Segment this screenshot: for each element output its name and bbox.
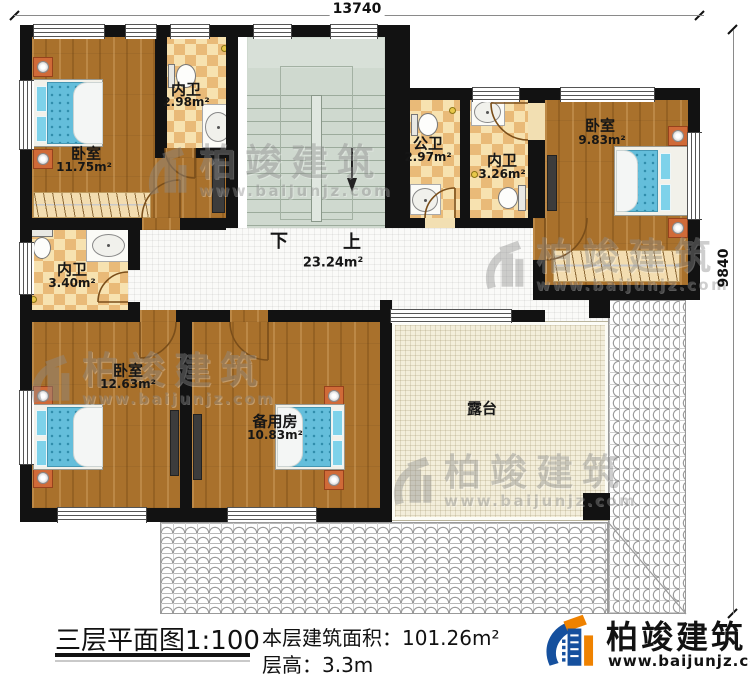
towel-hook — [471, 171, 478, 178]
window — [253, 24, 292, 39]
door-opening — [528, 103, 545, 140]
stair-landing — [248, 38, 384, 68]
cabinet-bedroom-tl — [212, 158, 225, 213]
toilet-bowl — [33, 237, 51, 259]
tv-panel-spare-room — [193, 414, 202, 480]
nightstand — [668, 126, 688, 146]
column-post — [589, 300, 610, 318]
stair-up-label: 上 — [343, 228, 361, 254]
title-underline-shadow — [55, 660, 250, 662]
bed-blanket — [73, 82, 103, 144]
wall — [533, 285, 700, 300]
room-label-terrace: 露台 — [467, 398, 497, 419]
window — [57, 507, 147, 523]
wall — [385, 25, 398, 228]
nightstand — [33, 468, 53, 488]
hallway-area-label: 23.24m² — [303, 256, 363, 271]
wall — [180, 322, 192, 522]
column-post — [583, 493, 610, 520]
floor-area-line: 本层建筑面积：101.26m² — [262, 622, 499, 651]
window — [19, 390, 34, 465]
window — [390, 309, 512, 323]
window — [330, 24, 378, 39]
door-opening — [128, 270, 140, 302]
nightstand — [324, 470, 344, 490]
wall — [398, 218, 545, 228]
bed-blanket — [73, 407, 103, 467]
stair-down-label: 下 — [270, 227, 288, 253]
bed-pillow — [660, 184, 671, 211]
door-opening — [165, 148, 195, 158]
toilet-bowl — [498, 187, 518, 209]
dimension-right-value: 9840 — [716, 246, 732, 291]
wall — [20, 218, 140, 230]
bed-pillow — [660, 153, 671, 180]
roof-lower — [160, 522, 608, 614]
brand-logo-icon — [540, 612, 602, 674]
bed-pillow — [332, 440, 343, 466]
bed-blanket — [616, 150, 638, 212]
window — [33, 24, 105, 39]
bed-pillow — [332, 410, 343, 436]
tv-panel-bedroom-tr — [547, 155, 557, 211]
window — [170, 24, 210, 39]
towel-hook — [449, 107, 456, 114]
wardrobe-bedroom-tr — [553, 250, 680, 282]
door-opening — [533, 218, 545, 260]
sink-basin — [474, 101, 501, 123]
nightstand — [33, 149, 53, 169]
floor-height-line: 层高：3.3m — [262, 649, 373, 678]
room-area-spare-room: 10.83m² — [247, 428, 303, 442]
window — [560, 87, 655, 102]
wall — [380, 300, 392, 522]
room-area-bedroom-tl: 11.75m² — [56, 160, 112, 174]
floor-plan-canvas: 柏竣建筑 www.baijunjz.com 柏竣建筑 www.baijunjz.… — [0, 0, 750, 681]
nightstand — [33, 386, 53, 406]
terrace-floor — [392, 322, 608, 520]
wardrobe-bedroom-tl — [33, 192, 151, 218]
nightstand — [668, 218, 688, 238]
nightstand — [33, 57, 53, 77]
bed-pillow — [36, 440, 47, 466]
door-opening — [230, 310, 268, 322]
room-area-bedroom-tr: 9.83m² — [578, 133, 625, 147]
floor-area-value: 101.26m² — [402, 626, 499, 650]
stair-divider — [311, 95, 322, 222]
tv-panel-bedroom-bl — [170, 410, 179, 476]
wall — [460, 100, 470, 218]
plan-title: 三层平面图1:100 — [55, 620, 260, 657]
bed-pillow — [36, 86, 47, 112]
window — [19, 80, 34, 150]
window — [472, 87, 520, 102]
roof-right — [608, 300, 686, 614]
room-area-bedroom-bl: 12.63m² — [100, 377, 156, 391]
floor-height-value: 3.3m — [322, 653, 373, 677]
wall — [398, 100, 410, 228]
door-opening — [425, 218, 455, 228]
room-area-bath-ml: 3.40m² — [48, 276, 95, 290]
sink-basin — [412, 188, 438, 212]
floor-area-label: 本层建筑面积： — [262, 626, 402, 650]
floor-height-label: 层高： — [262, 653, 322, 677]
room-area-bath-tm: 3.26m² — [478, 167, 525, 181]
window — [19, 242, 34, 295]
title-underline — [55, 653, 250, 657]
room-area-bath-public: 2.97m² — [404, 150, 451, 164]
bed-pillow — [36, 410, 47, 436]
door-opening — [142, 218, 180, 230]
window — [125, 24, 157, 39]
brand-url: www.baijunjz.com — [608, 652, 750, 670]
window — [227, 507, 317, 523]
sink-basin — [92, 234, 125, 257]
room-area-bath-tl: 2.98m² — [162, 95, 209, 109]
window — [687, 132, 702, 220]
nightstand — [324, 386, 344, 406]
dimension-top-value: 13740 — [330, 1, 385, 17]
toilet-tank — [31, 229, 53, 237]
dimension-line-right — [733, 30, 734, 614]
bed-pillow — [36, 116, 47, 142]
wall — [226, 25, 238, 228]
toilet-tank — [518, 185, 526, 211]
door-opening — [140, 310, 176, 322]
